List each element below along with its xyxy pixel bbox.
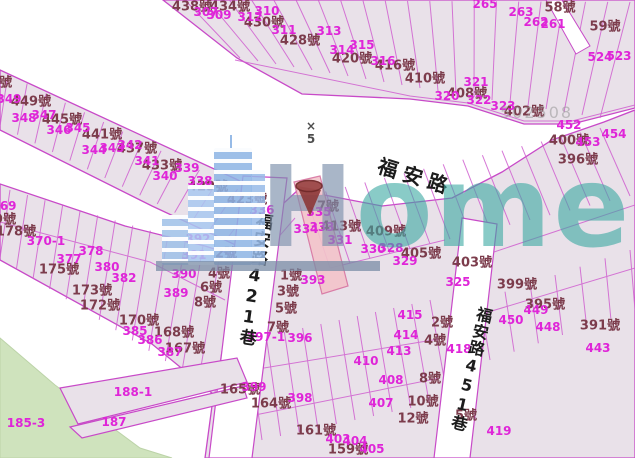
cadastral-map[interactable]: 福安路 福安路421巷 福安路451巷 × 5 438號434號430號428號… [0,0,635,458]
map-base-layer [0,0,635,458]
